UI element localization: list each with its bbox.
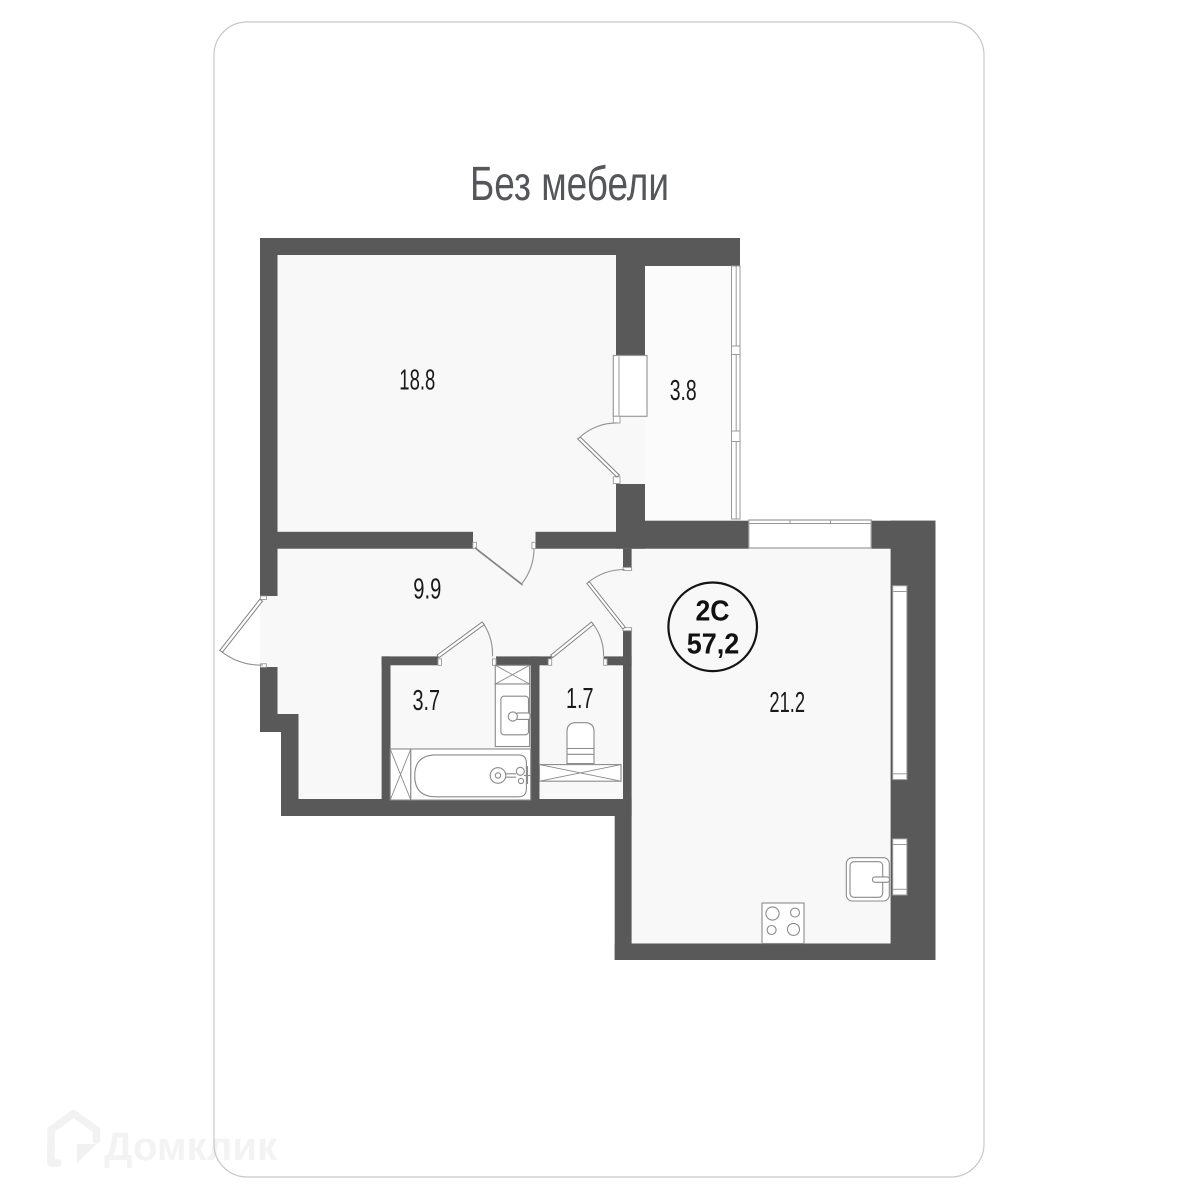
svg-text:9.9: 9.9 xyxy=(413,573,441,605)
svg-text:2С: 2С xyxy=(696,596,730,628)
svg-text:3.7: 3.7 xyxy=(413,685,441,717)
svg-text:Без мебели: Без мебели xyxy=(470,158,669,211)
svg-text:18.8: 18.8 xyxy=(399,365,435,397)
svg-text:57,2: 57,2 xyxy=(687,628,740,660)
svg-text:21.2: 21.2 xyxy=(769,687,805,719)
svg-text:1.7: 1.7 xyxy=(566,683,594,715)
svg-text:3.8: 3.8 xyxy=(670,375,697,407)
svg-text:Домклик: Домклик xyxy=(104,1125,278,1169)
